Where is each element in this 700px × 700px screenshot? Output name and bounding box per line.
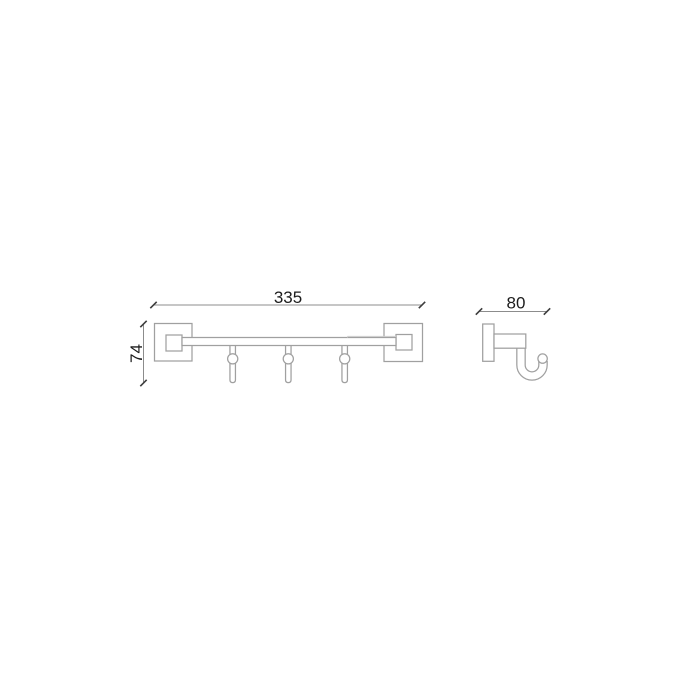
hook-3-ball — [340, 354, 350, 364]
side-arm — [494, 334, 526, 348]
left-plate-inner-square — [166, 335, 182, 351]
height-dimension: 74 — [127, 321, 147, 386]
side-hook-ball — [538, 354, 547, 363]
hook-1-ball — [228, 354, 238, 364]
depth-dimension: 80 — [476, 294, 550, 315]
height-dimension-label: 74 — [127, 344, 146, 363]
drawing-page: 335 74 — [0, 0, 700, 700]
width-dimension-label: 335 — [274, 288, 302, 307]
width-dimension: 335 — [150, 288, 425, 308]
front-view: 335 74 — [127, 288, 425, 386]
side-wall-plate — [483, 324, 494, 361]
hook-balls-front — [228, 354, 350, 364]
towel-bar — [182, 338, 396, 346]
hook-2-ball — [283, 354, 293, 364]
right-plate-inner-square — [396, 335, 412, 351]
side-view: 80 — [476, 294, 550, 377]
technical-drawing-canvas: 335 74 — [0, 0, 700, 700]
depth-dimension-label: 80 — [507, 294, 526, 313]
